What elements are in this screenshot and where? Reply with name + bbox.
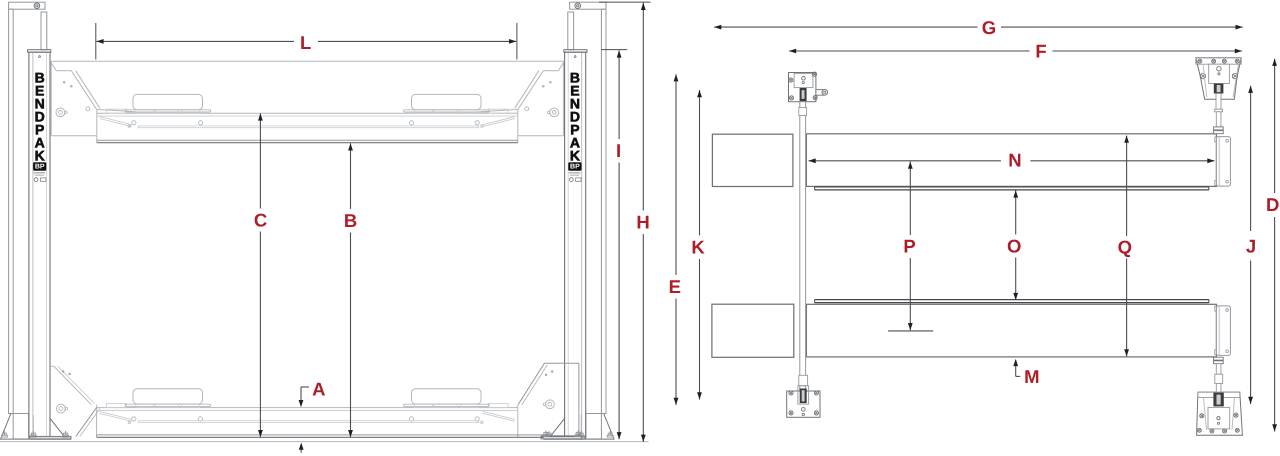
svg-text:I: I xyxy=(616,140,621,161)
svg-text:BP: BP xyxy=(570,164,580,171)
svg-text:D: D xyxy=(1266,194,1279,215)
svg-text:P: P xyxy=(903,236,915,257)
svg-text:J: J xyxy=(1246,236,1256,257)
svg-text:BP: BP xyxy=(35,164,45,171)
svg-text:O: O xyxy=(1007,235,1021,256)
svg-text:A: A xyxy=(312,379,325,400)
svg-text:B: B xyxy=(344,210,357,231)
svg-text:K: K xyxy=(35,148,45,164)
svg-text:F: F xyxy=(1035,41,1046,62)
svg-text:L: L xyxy=(300,32,311,53)
svg-text:C: C xyxy=(254,210,267,231)
svg-text:K: K xyxy=(570,148,580,164)
svg-text:E: E xyxy=(669,276,681,297)
svg-text:N: N xyxy=(1008,150,1021,171)
svg-text:K: K xyxy=(691,237,705,258)
svg-text:H: H xyxy=(636,212,649,233)
svg-text:G: G xyxy=(982,17,996,38)
svg-text:M: M xyxy=(1024,366,1039,387)
svg-text:Q: Q xyxy=(1118,237,1132,258)
